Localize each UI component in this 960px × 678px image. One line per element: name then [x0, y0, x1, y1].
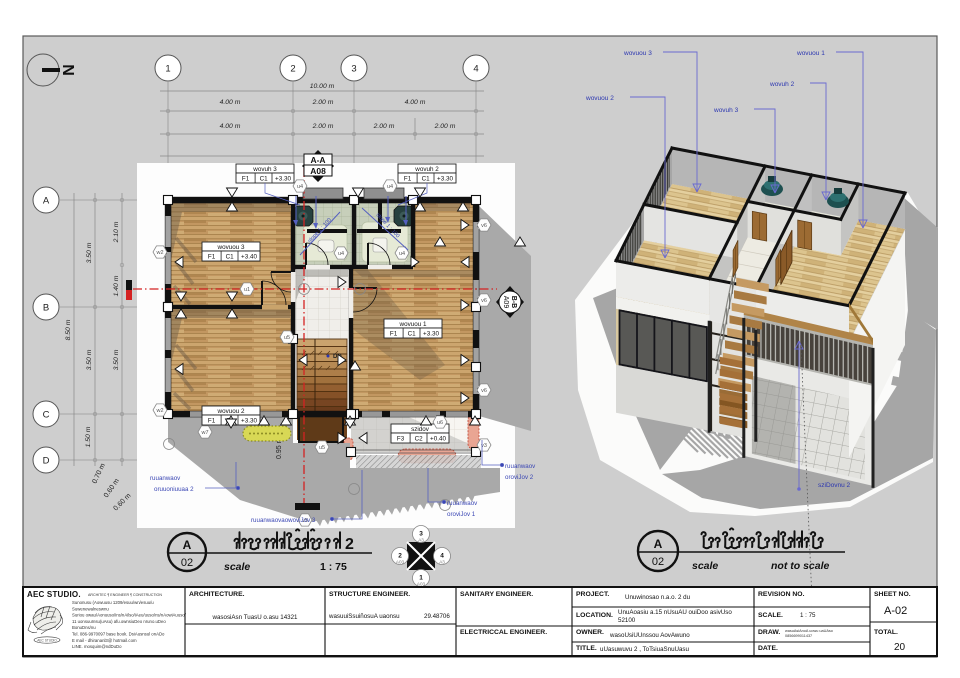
svg-text:29.48706: 29.48706 — [424, 613, 450, 620]
svg-text:ruuanwaov: ruuanwaov — [505, 463, 536, 470]
svg-text:DATE.: DATE. — [758, 645, 778, 652]
svg-text:oroviJov 1: oroviJov 1 — [447, 511, 476, 518]
svg-text:Sunonusu (Aowuusu 1209/esuu/wn: Sunonusu (Aowuusu 1209/esuu/wn/esuu/u — [72, 600, 154, 605]
svg-text:+0.40: +0.40 — [430, 436, 446, 443]
svg-text:wovuh 3: wovuh 3 — [252, 166, 277, 173]
svg-text:2.00 m: 2.00 m — [312, 123, 334, 130]
svg-text:A3: A3 — [418, 538, 424, 543]
svg-text:u1: u1 — [244, 287, 250, 293]
svg-text:SANITARY ENGINEER.: SANITARY ENGINEER. — [460, 591, 533, 598]
svg-text:ELECTRICCAL ENGINEER.: ELECTRICCAL ENGINEER. — [460, 629, 547, 636]
svg-text:ARCHITECTURE.: ARCHITECTURE. — [189, 591, 245, 598]
svg-text:E mail - dhirananl3@ hotmail.: E mail - dhirananl3@ hotmail.com — [72, 638, 137, 643]
svg-text:wasosiAsn TuasU o.asu 14321: wasosiAsn TuasU o.asu 14321 — [212, 614, 299, 621]
svg-text:oruuoniuuaa 2: oruuoniuuaa 2 — [154, 486, 194, 493]
svg-text:1: 1 — [165, 64, 170, 75]
svg-text:4: 4 — [440, 553, 444, 560]
svg-text:02: 02 — [652, 556, 664, 568]
svg-text:u6: u6 — [437, 420, 443, 426]
svg-text:Tel. 086-9970097 base book.: Tel. 086-9970097 base book. DsiAusnsul o… — [72, 632, 165, 637]
svg-text:B-B: B-B — [510, 296, 517, 308]
svg-text:3.50 m: 3.50 m — [86, 242, 93, 263]
svg-text:SHEET NO.: SHEET NO. — [874, 591, 911, 598]
svg-text:A03: A03 — [417, 582, 426, 587]
svg-text:B: B — [43, 303, 49, 314]
svg-text:2: 2 — [345, 536, 354, 553]
svg-text:+3.30: +3.30 — [275, 176, 291, 183]
svg-text:02: 02 — [181, 557, 193, 569]
svg-text:C: C — [43, 410, 50, 421]
svg-text:AEC STUDIO.: AEC STUDIO. — [27, 590, 81, 599]
svg-text:AEC STUDIO: AEC STUDIO — [37, 639, 57, 643]
svg-text:sziDovnu 2: sziDovnu 2 — [818, 482, 851, 489]
svg-text:F1: F1 — [242, 176, 250, 183]
svg-text:w2: w2 — [155, 250, 163, 256]
svg-text:scale: scale — [692, 560, 718, 572]
svg-text:ruuanwaov: ruuanwaov — [150, 475, 181, 482]
svg-text:UnuAoasiu a.15 nUsuAU ouiDoo a: UnuAoasiu a.15 nUsuAU ouiDoo asivUso — [618, 609, 732, 616]
svg-text:wovuou 2: wovuou 2 — [585, 95, 614, 102]
svg-text:N: N — [59, 64, 76, 76]
svg-text:F3: F3 — [397, 436, 405, 443]
svg-text:1 : 75: 1 : 75 — [320, 561, 347, 573]
svg-text:F1: F1 — [390, 331, 398, 338]
svg-text:C1: C1 — [260, 176, 269, 183]
svg-text:+3.30: +3.30 — [423, 331, 439, 338]
svg-text:C1: C1 — [408, 331, 417, 338]
svg-text:v6: v6 — [481, 388, 487, 394]
svg-text:4.00 m: 4.00 m — [220, 99, 241, 106]
svg-text:wasuuiSsuiñosuA uaonsu: wasuuiSsuiñosuA uaonsu — [328, 613, 400, 620]
svg-text:A-02: A-02 — [884, 605, 907, 617]
svg-text:not to scale: not to scale — [771, 560, 830, 572]
svg-text:F1: F1 — [404, 176, 412, 183]
svg-text:2.00 m: 2.00 m — [373, 123, 395, 130]
svg-text:C1: C1 — [226, 254, 235, 261]
svg-text:11 uonsuuInsu(uAsu) afu.ownsi: 11 uonsuuInsu(uAsu) afu.ownsiuDeo nruno.… — [72, 619, 166, 624]
svg-text:3: 3 — [419, 531, 423, 538]
svg-text:1.50 m: 1.50 m — [85, 426, 92, 447]
svg-text:STRUCTURE ENGINEER.: STRUCTURE ENGINEER. — [329, 591, 410, 598]
svg-text:A09: A09 — [502, 296, 509, 309]
svg-text:u5: u5 — [284, 335, 290, 341]
svg-text:TITLE.: TITLE. — [576, 645, 597, 652]
svg-text:wovuh 2: wovuh 2 — [414, 166, 439, 173]
svg-text:C2: C2 — [415, 436, 424, 443]
svg-text:w7: w7 — [200, 430, 208, 436]
svg-text:A08: A08 — [310, 166, 326, 176]
svg-text:OWNER.: OWNER. — [576, 629, 604, 636]
svg-text:szidov: szidov — [411, 426, 430, 433]
svg-text:52100: 52100 — [618, 617, 636, 624]
svg-text:v6: v6 — [481, 298, 487, 304]
svg-text:LINE. mosquim@ndDuDo: LINE. mosquim@ndDuDo — [72, 644, 122, 649]
svg-text:2.00 m: 2.00 m — [434, 123, 456, 130]
svg-text:wovuh 3: wovuh 3 — [713, 107, 739, 114]
svg-text:REVISION NO.: REVISION NO. — [758, 591, 805, 598]
svg-text:wasuAsiAnoA uowu uaUAso: wasuAsiAnoA uowu uaUAso — [785, 629, 833, 633]
svg-text:F1: F1 — [208, 254, 216, 261]
svg-text:1.40 m: 1.40 m — [113, 275, 120, 296]
svg-text:u5: u5 — [319, 445, 325, 451]
svg-text:1 : 75: 1 : 75 — [800, 612, 816, 619]
svg-text:A: A — [654, 537, 663, 551]
svg-text:u4: u4 — [387, 184, 393, 190]
svg-text:uUasuwuvu 2 , ToTsiuaSnuUasu: uUasuwuvu 2 , ToTsiuaSnuUasu — [600, 646, 690, 653]
svg-text:w2: w2 — [155, 408, 163, 414]
svg-text:LOCATION.: LOCATION. — [576, 612, 613, 619]
svg-text:+3.30: +3.30 — [437, 176, 453, 183]
svg-text:D: D — [43, 456, 50, 467]
svg-text:A-A: A-A — [310, 155, 325, 165]
svg-text:8.50 m: 8.50 m — [65, 319, 72, 340]
svg-text:ARCHITEC ¶ ENGINEER ¶ CONSTRUC: ARCHITEC ¶ ENGINEER ¶ CONSTRUCTION — [88, 593, 162, 597]
svg-text:wovuou 3: wovuou 3 — [623, 50, 652, 57]
svg-text:wovuou 3: wovuou 3 — [217, 244, 245, 251]
svg-text:F1: F1 — [208, 418, 216, 425]
svg-text:3.50 m: 3.50 m — [113, 349, 120, 370]
svg-text:v6: v6 — [481, 223, 487, 229]
svg-text:u4: u4 — [297, 184, 303, 190]
svg-text:oroviJov 2: oroviJov 2 — [505, 474, 534, 481]
svg-text:wovuh 2: wovuh 2 — [769, 81, 795, 88]
svg-text:wovuou 1: wovuou 1 — [399, 321, 427, 328]
svg-text:10.00 m: 10.00 m — [310, 83, 335, 90]
svg-text:ruuanwaovaowoviJov 3: ruuanwaovaowoviJov 3 — [251, 517, 316, 524]
svg-text:A: A — [43, 196, 50, 207]
svg-text:C1: C1 — [422, 176, 431, 183]
svg-text:2: 2 — [290, 64, 295, 75]
svg-text:PROJECT.: PROJECT. — [576, 591, 609, 598]
svg-text:2.10 m: 2.10 m — [113, 221, 120, 243]
svg-text:4.00 m: 4.00 m — [220, 123, 241, 130]
svg-text:Unuwinosao n.a.o. 2 du: Unuwinosao n.a.o. 2 du — [625, 594, 691, 601]
svg-text:4.00 m: 4.00 m — [405, 99, 426, 106]
svg-text:scale: scale — [224, 561, 250, 573]
svg-text:Suriou owau/Aonuuso/ins/nAilso: Suriou owau/Aonuuso/ins/nAilso/iAeu/uuso… — [72, 613, 187, 618]
svg-text:2.00 m: 2.00 m — [312, 99, 334, 106]
svg-text:4: 4 — [473, 64, 478, 75]
svg-text:A: A — [183, 538, 192, 552]
svg-text:20: 20 — [894, 642, 906, 653]
svg-text:A03: A03 — [396, 560, 405, 565]
svg-text:1: 1 — [419, 575, 423, 582]
svg-text:DRAW.: DRAW. — [758, 629, 780, 636]
svg-text:A3: A3 — [439, 560, 445, 565]
svg-text:2: 2 — [398, 553, 402, 560]
svg-text:SCALE.: SCALE. — [758, 612, 783, 619]
svg-text:wovuou 1: wovuou 1 — [796, 50, 825, 57]
svg-text:0856699011437: 0856699011437 — [785, 634, 812, 638]
svg-text:Suwenewalneswnu: Suwenewalneswnu — [72, 606, 109, 611]
svg-text:wasoUsiUUnssou AovAwuno: wasoUsiUUnssou AovAwuno — [609, 632, 690, 639]
svg-text:3.50 m: 3.50 m — [86, 349, 93, 370]
svg-text:u4: u4 — [399, 251, 405, 257]
svg-text:+3.30: +3.30 — [241, 418, 257, 425]
svg-text:BonuDns/nu: BonuDns/nu — [72, 625, 96, 630]
svg-text:u4: u4 — [338, 251, 344, 257]
svg-text:wovuou 2: wovuou 2 — [217, 408, 245, 415]
svg-text:3: 3 — [351, 64, 356, 75]
svg-text:ruuanwaov: ruuanwaov — [447, 500, 478, 507]
svg-text:TOTAL.: TOTAL. — [874, 629, 898, 636]
svg-text:+3.40: +3.40 — [241, 254, 257, 261]
